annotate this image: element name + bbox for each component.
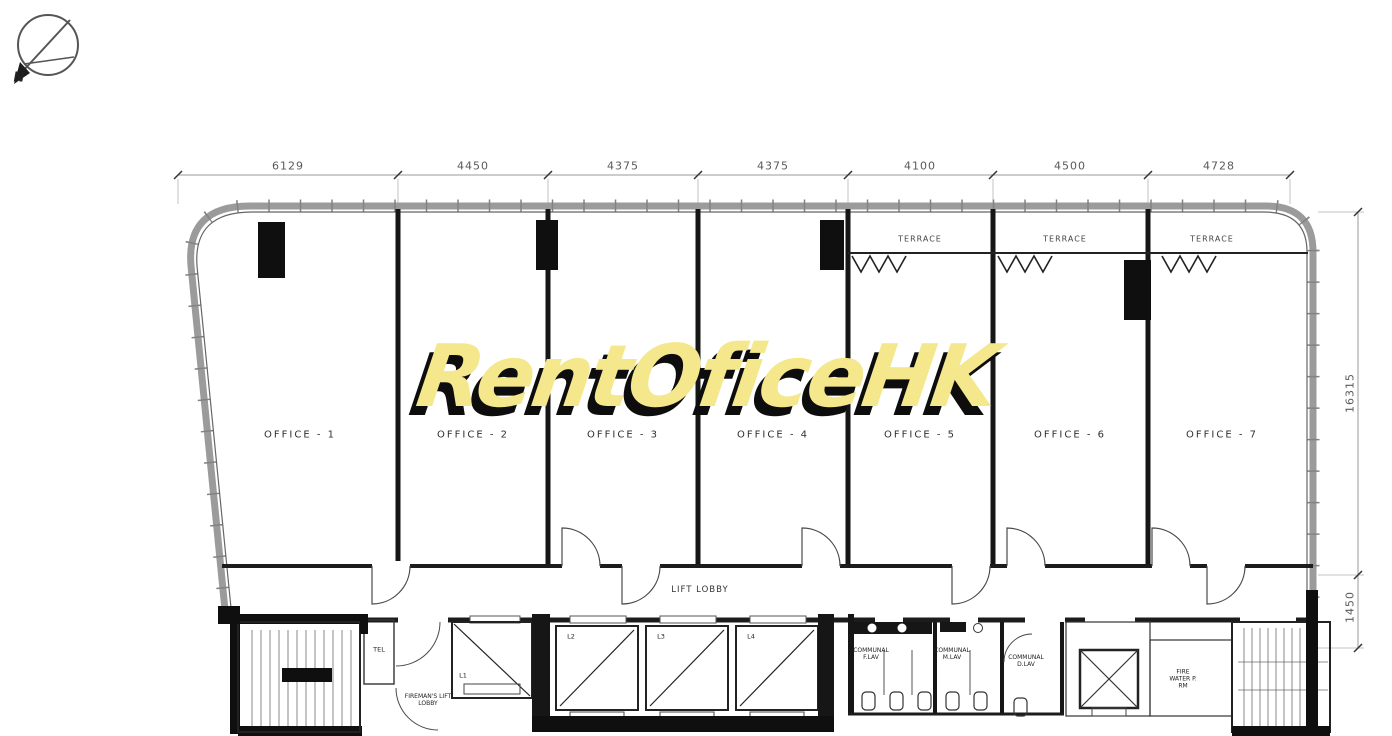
office-5-label: OFFICE - 5 (884, 429, 956, 441)
office-3-label: OFFICE - 3 (587, 429, 659, 441)
lift-bank-rear-wall (532, 716, 834, 732)
stair-left (218, 606, 362, 736)
lift-bank-wall-right (818, 614, 834, 720)
top-dimension-line (174, 171, 1294, 204)
stair-right (1232, 590, 1330, 736)
fireman-lift-lobby-label: FIREMAN'S LIFT LOBBY (404, 694, 452, 708)
terrace-line (848, 253, 1308, 272)
floor-plan-page: N 6129 4450 4375 4375 4100 4500 4728 163… (0, 0, 1392, 736)
terrace-3-label: TERRACE (1190, 234, 1234, 243)
dim-top-7: 4728 (1203, 161, 1235, 174)
communal-d-lav-label: COMMUNAL D.LAV (1008, 655, 1044, 669)
tel-room-label: TEL (373, 646, 385, 653)
lift-l1-shaft (452, 622, 532, 698)
communal-f-lav-label: COMMUNAL F.LAV (853, 648, 889, 662)
right-dimension-line (1318, 208, 1364, 652)
service-shaft (1066, 622, 1150, 716)
dim-top-3: 4375 (607, 161, 639, 174)
pump-room-label: FIRE WATER P. RM (1167, 670, 1199, 691)
office-2-label: OFFICE - 2 (437, 429, 509, 441)
dim-right-2: 1450 (1345, 591, 1358, 623)
lift-l1-label: L1 (459, 672, 467, 679)
communal-m-lav-label: COMMUNAL M.LAV (934, 648, 970, 662)
office-7-label: OFFICE - 7 (1186, 429, 1258, 441)
office-6-label: OFFICE - 6 (1034, 429, 1106, 441)
lift-l2-label: L2 (567, 633, 575, 640)
lift-l4-label: L4 (747, 633, 755, 640)
lift-l3-label: L3 (657, 633, 665, 640)
columns (258, 220, 1151, 320)
terrace-1-label: TERRACE (898, 234, 942, 243)
dim-top-1: 6129 (272, 161, 304, 174)
dim-top-2: 4450 (457, 161, 489, 174)
lift-bank-wall-left (532, 614, 550, 720)
office-1-label: OFFICE - 1 (264, 429, 336, 441)
lift-lobby-label: LIFT LOBBY (671, 586, 728, 596)
watermark: RentOficeHK (411, 327, 1003, 427)
fireman-lift-lobby (396, 622, 440, 730)
office-4-label: OFFICE - 4 (737, 429, 809, 441)
north-label: N (14, 72, 25, 87)
dim-top-4: 4375 (757, 161, 789, 174)
dim-right-1: 16315 (1345, 373, 1358, 413)
terrace-2-label: TERRACE (1043, 234, 1087, 243)
dim-top-6: 4500 (1054, 161, 1086, 174)
dim-top-5: 4100 (904, 161, 936, 174)
